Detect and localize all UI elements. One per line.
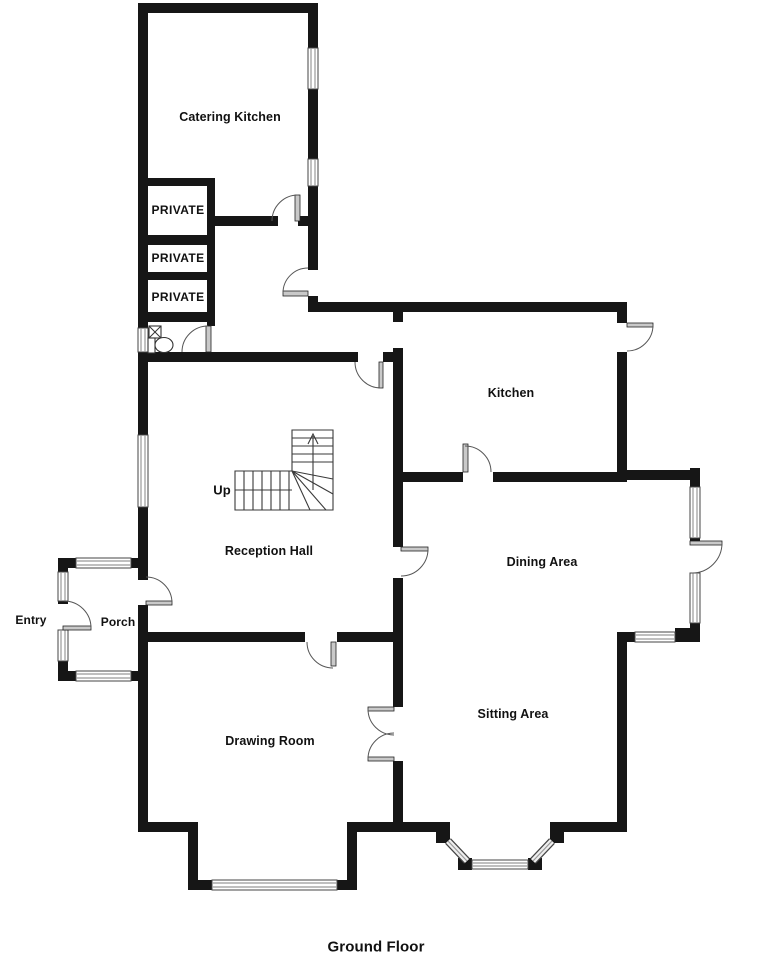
- room-label-private-3: PRIVATE: [151, 290, 204, 304]
- door-dining-french: [690, 541, 722, 573]
- door-double-top: [368, 707, 394, 735]
- windows: [58, 48, 700, 890]
- door-kitchen-to-dining: [463, 444, 491, 472]
- window-sitting-bay-left: [448, 841, 467, 861]
- window-dining-lower: [690, 573, 700, 623]
- room-label-sitting-area: Sitting Area: [478, 707, 549, 721]
- room-label-private-1: PRIVATE: [151, 203, 204, 217]
- room-label-kitchen: Kitchen: [488, 386, 535, 400]
- room-label-drawing-room: Drawing Room: [225, 734, 314, 748]
- wc-fixtures: [148, 326, 173, 353]
- room-label-porch: Porch: [101, 615, 136, 629]
- sink-icon: [149, 326, 161, 338]
- floor-title: Ground Floor: [327, 939, 424, 956]
- window-reception-hall: [138, 435, 148, 507]
- floor-plan: Catering Kitchen PRIVATE PRIVATE PRIVATE…: [0, 0, 767, 969]
- toilet-icon: [148, 338, 173, 354]
- room-label-catering-kitchen: Catering Kitchen: [179, 110, 281, 124]
- room-label-reception-hall: Reception Hall: [225, 544, 313, 558]
- door-hall-to-dining: [401, 547, 428, 576]
- interior-walls: [138, 178, 627, 822]
- window-porch-top: [76, 558, 131, 568]
- staircase: [235, 430, 333, 510]
- door-entry: [63, 601, 91, 630]
- door-corridor-side-entrance: [283, 268, 308, 296]
- stairs-direction-label: Up: [213, 483, 231, 498]
- room-label-private-2: PRIVATE: [151, 251, 204, 265]
- window-dining-upper: [690, 487, 700, 538]
- window-dining-bottom: [635, 632, 675, 642]
- window-drawing-bay: [212, 880, 337, 890]
- window-sitting-bay-center: [472, 860, 528, 869]
- window-catering-kitchen-1: [308, 48, 318, 89]
- door-porch-to-hall: [146, 577, 172, 605]
- door-hall-to-drawing-room: [307, 642, 336, 668]
- window-wc: [138, 328, 148, 352]
- door-double-bottom: [368, 733, 394, 761]
- door-kitchen-side: [627, 323, 653, 351]
- entry-label: Entry: [15, 613, 46, 627]
- window-porch-left-upper: [58, 572, 68, 601]
- room-label-dining-area: Dining Area: [507, 555, 578, 569]
- window-porch-bottom: [76, 671, 131, 681]
- window-sitting-bay-right: [533, 841, 552, 861]
- door-wc: [182, 326, 211, 352]
- window-catering-kitchen-2: [308, 159, 318, 186]
- window-porch-left-lower: [58, 630, 68, 661]
- door-hall-to-corridor: [355, 362, 383, 388]
- floor-plan-drawing: [0, 0, 767, 969]
